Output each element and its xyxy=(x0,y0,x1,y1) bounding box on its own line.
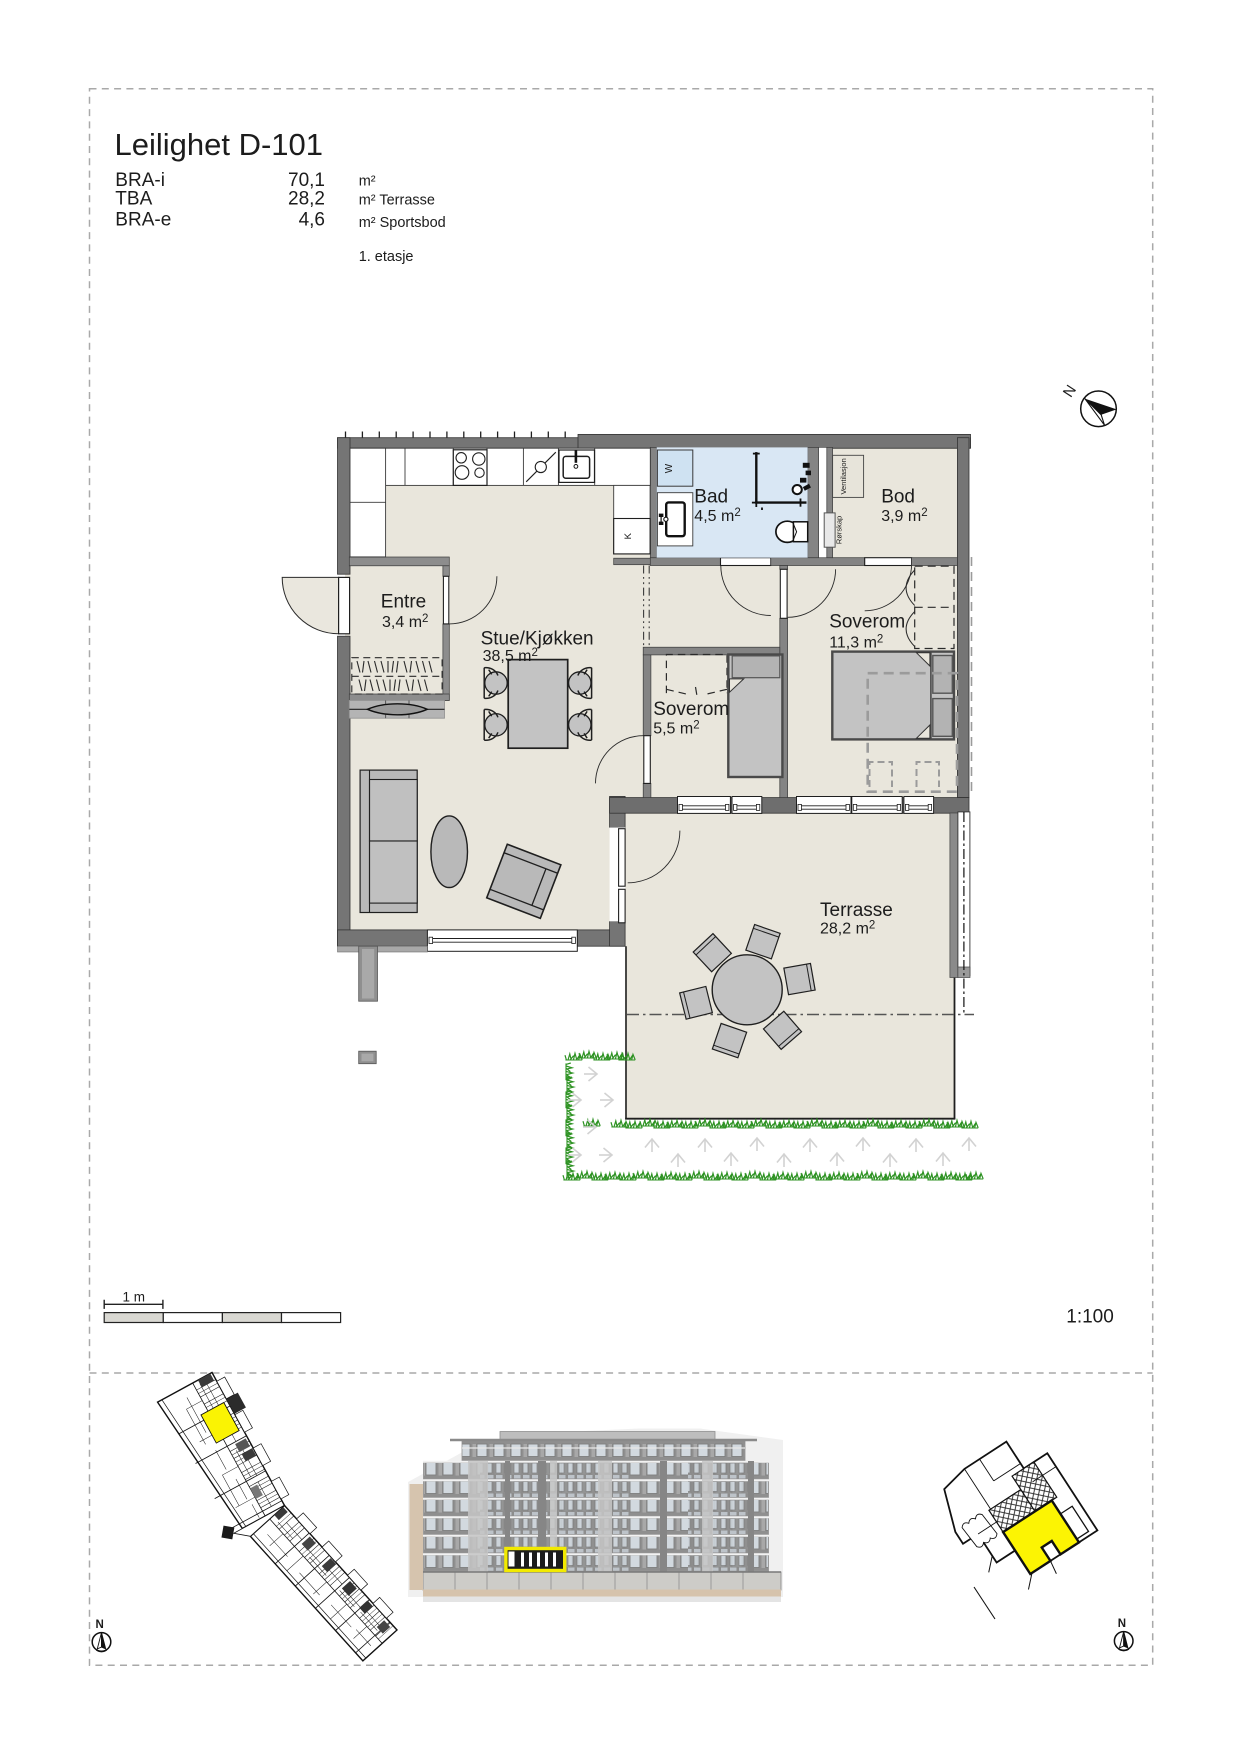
svg-text:m² Terrasse: m² Terrasse xyxy=(359,192,435,208)
svg-text:Leilighet D-101: Leilighet D-101 xyxy=(115,127,324,162)
svg-text:4,6: 4,6 xyxy=(299,210,325,231)
svg-text:28,2: 28,2 xyxy=(288,189,325,210)
svg-text:1:100: 1:100 xyxy=(1066,1307,1114,1328)
svg-text:Soverom: Soverom xyxy=(653,699,729,720)
svg-text:N: N xyxy=(96,1619,104,1631)
svg-text:m²: m² xyxy=(359,174,376,190)
svg-text:BRA-e: BRA-e xyxy=(115,210,171,231)
svg-text:Soverom: Soverom xyxy=(829,612,905,633)
svg-text:N: N xyxy=(1118,1618,1126,1630)
svg-text:5,5 m2: 5,5 m2 xyxy=(653,720,699,738)
svg-text:Rørskap: Rørskap xyxy=(835,516,844,544)
svg-text:38,5 m2: 38,5 m2 xyxy=(483,647,538,665)
svg-text:3,4 m2: 3,4 m2 xyxy=(382,613,428,631)
svg-text:1 m: 1 m xyxy=(123,1290,146,1305)
svg-text:Ventilasjon: Ventilasjon xyxy=(839,458,848,494)
svg-text:Bod: Bod xyxy=(881,486,915,507)
svg-text:m² Sportsbod: m² Sportsbod xyxy=(359,215,446,231)
svg-text:W: W xyxy=(664,463,675,473)
svg-text:K: K xyxy=(623,532,634,539)
svg-text:4,5 m2: 4,5 m2 xyxy=(694,507,740,525)
svg-text:1. etasje: 1. etasje xyxy=(359,249,414,265)
svg-text:TBA: TBA xyxy=(115,189,152,210)
svg-text:Terrasse: Terrasse xyxy=(820,900,893,921)
svg-text:11,3 m2: 11,3 m2 xyxy=(829,634,883,652)
svg-text:Entre: Entre xyxy=(381,592,426,613)
svg-text:28,2 m2: 28,2 m2 xyxy=(820,920,875,938)
svg-text:3,9 m2: 3,9 m2 xyxy=(881,507,927,525)
svg-text:Bad: Bad xyxy=(694,486,728,507)
